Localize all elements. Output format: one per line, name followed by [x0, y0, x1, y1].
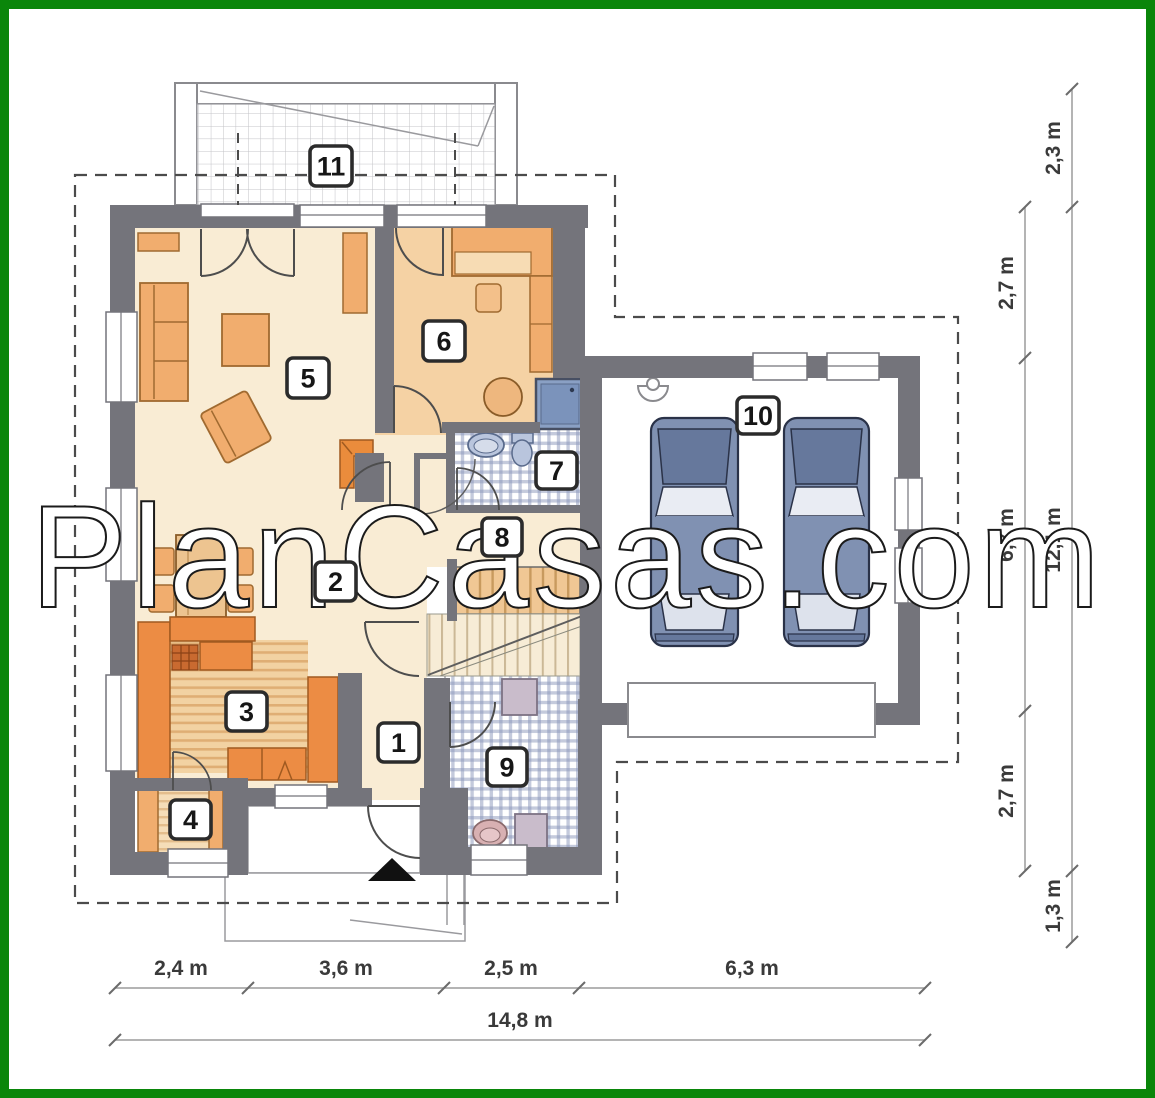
svg-text:11: 11	[317, 152, 346, 182]
svg-text:3: 3	[239, 697, 254, 727]
svg-text:1: 1	[391, 728, 406, 758]
svg-text:8: 8	[494, 523, 509, 553]
svg-text:9: 9	[499, 753, 514, 783]
svg-text:2,7 m: 2,7 m	[995, 764, 1018, 818]
svg-text:2,7 m: 2,7 m	[995, 256, 1018, 310]
svg-text:14,8 m: 14,8 m	[487, 1009, 552, 1032]
svg-text:2: 2	[328, 567, 343, 597]
svg-text:6: 6	[436, 327, 451, 357]
svg-text:2,3 m: 2,3 m	[1042, 121, 1065, 175]
svg-text:10: 10	[743, 401, 773, 431]
svg-text:3,6 m: 3,6 m	[319, 957, 373, 980]
svg-text:6,3 m: 6,3 m	[725, 957, 779, 980]
svg-text:5: 5	[300, 364, 315, 394]
svg-text:1,3 m: 1,3 m	[1042, 879, 1065, 933]
svg-text:2,4 m: 2,4 m	[154, 957, 208, 980]
svg-text:4: 4	[183, 805, 198, 835]
svg-text:PlanCasas.com: PlanCasas.com	[30, 475, 1104, 638]
svg-text:7: 7	[549, 456, 564, 486]
svg-text:2,5 m: 2,5 m	[484, 957, 538, 980]
